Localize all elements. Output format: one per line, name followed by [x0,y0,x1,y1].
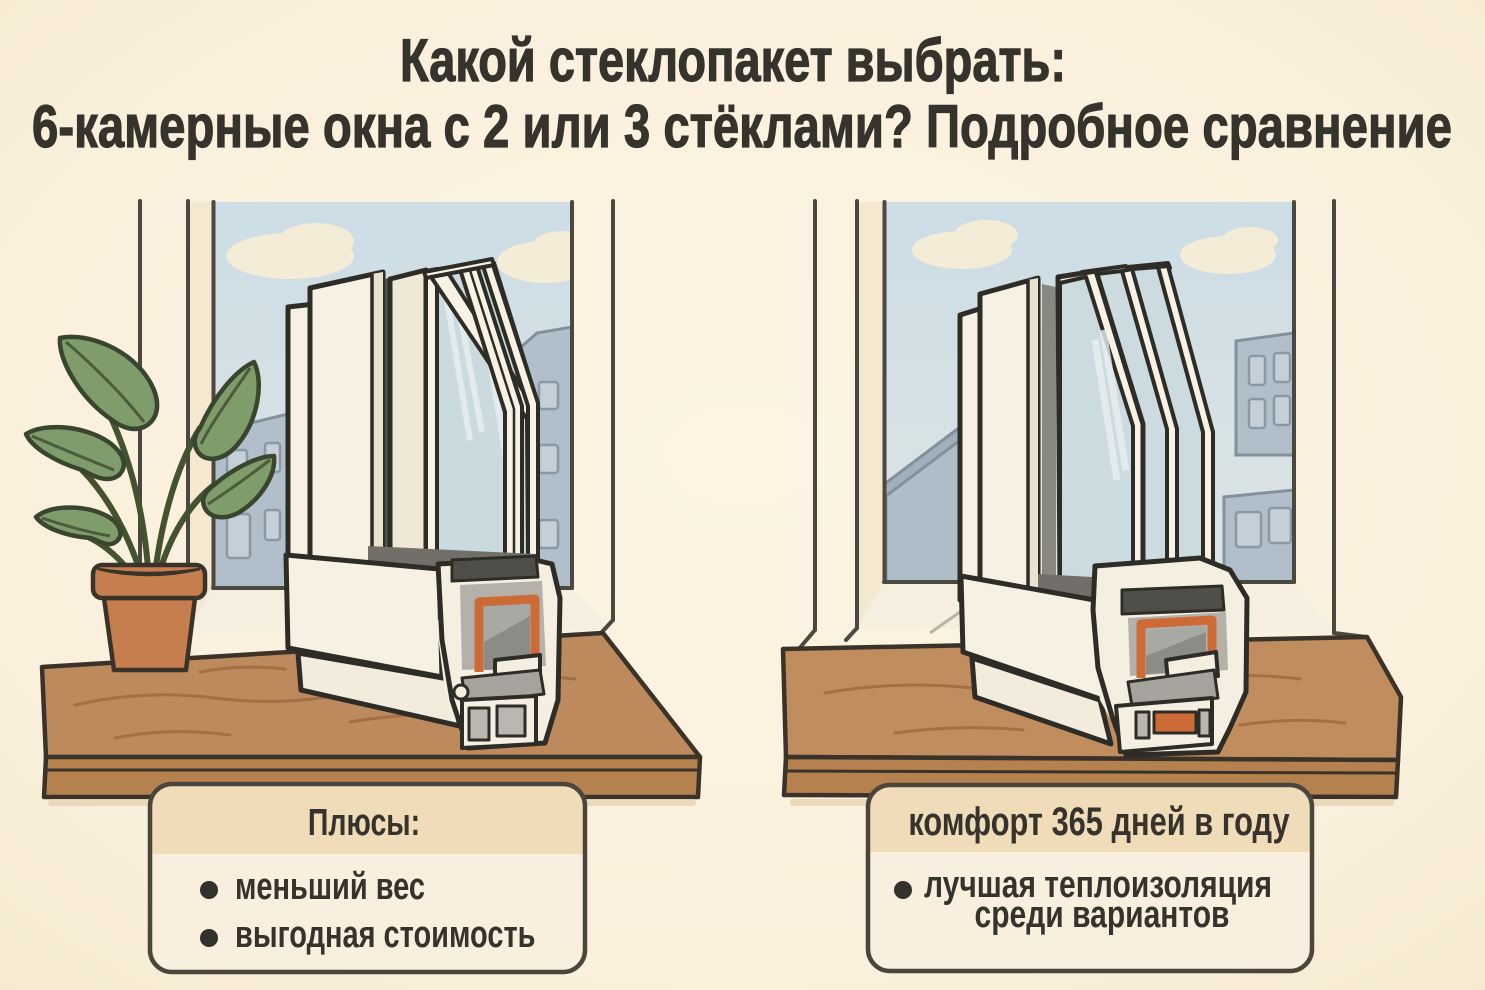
svg-text:комфорт 365 дней в году: комфорт 365 дней в году [908,799,1289,844]
svg-text:6-камерные окна с 2 или 3 стёк: 6-камерные окна с 2 или 3 стёклами? Подр… [32,94,1452,161]
svg-text:Какой стеклопакет выбрать:: Какой стеклопакет выбрать: [400,28,1066,95]
svg-text:среди вариантов: среди вариантов [975,894,1230,936]
svg-text:меньший вес: меньший вес [235,865,425,908]
svg-text:выгодная стоимость: выгодная стоимость [235,913,536,956]
svg-text:Плюсы:: Плюсы: [308,802,420,844]
